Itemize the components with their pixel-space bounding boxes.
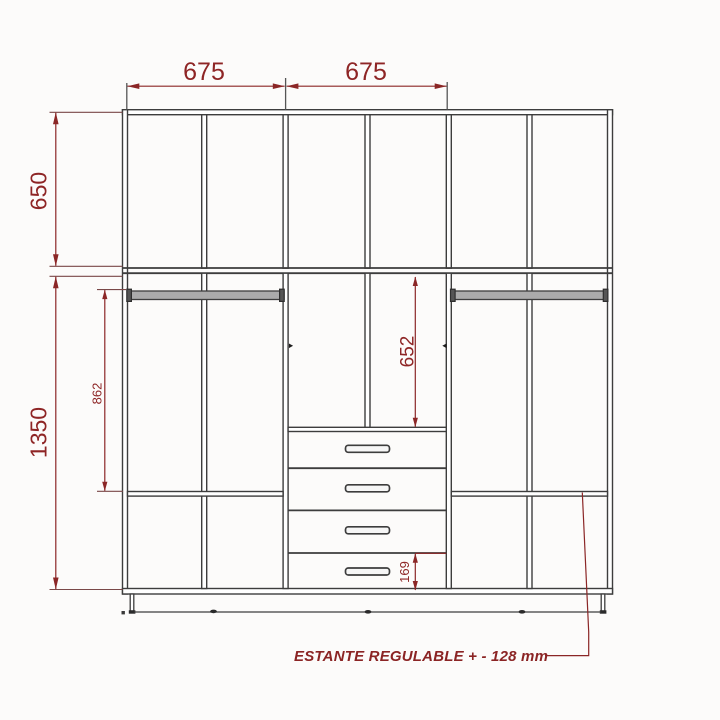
- svg-text:ESTANTE REGULABLE + - 128 mm: ESTANTE REGULABLE + - 128 mm: [294, 648, 548, 665]
- svg-text:1350: 1350: [26, 407, 52, 458]
- svg-text:650: 650: [26, 172, 52, 210]
- svg-text:169: 169: [397, 561, 412, 583]
- svg-text:862: 862: [90, 383, 105, 405]
- svg-text:675: 675: [345, 58, 387, 86]
- svg-text:652: 652: [398, 336, 419, 368]
- svg-text:675: 675: [183, 58, 225, 86]
